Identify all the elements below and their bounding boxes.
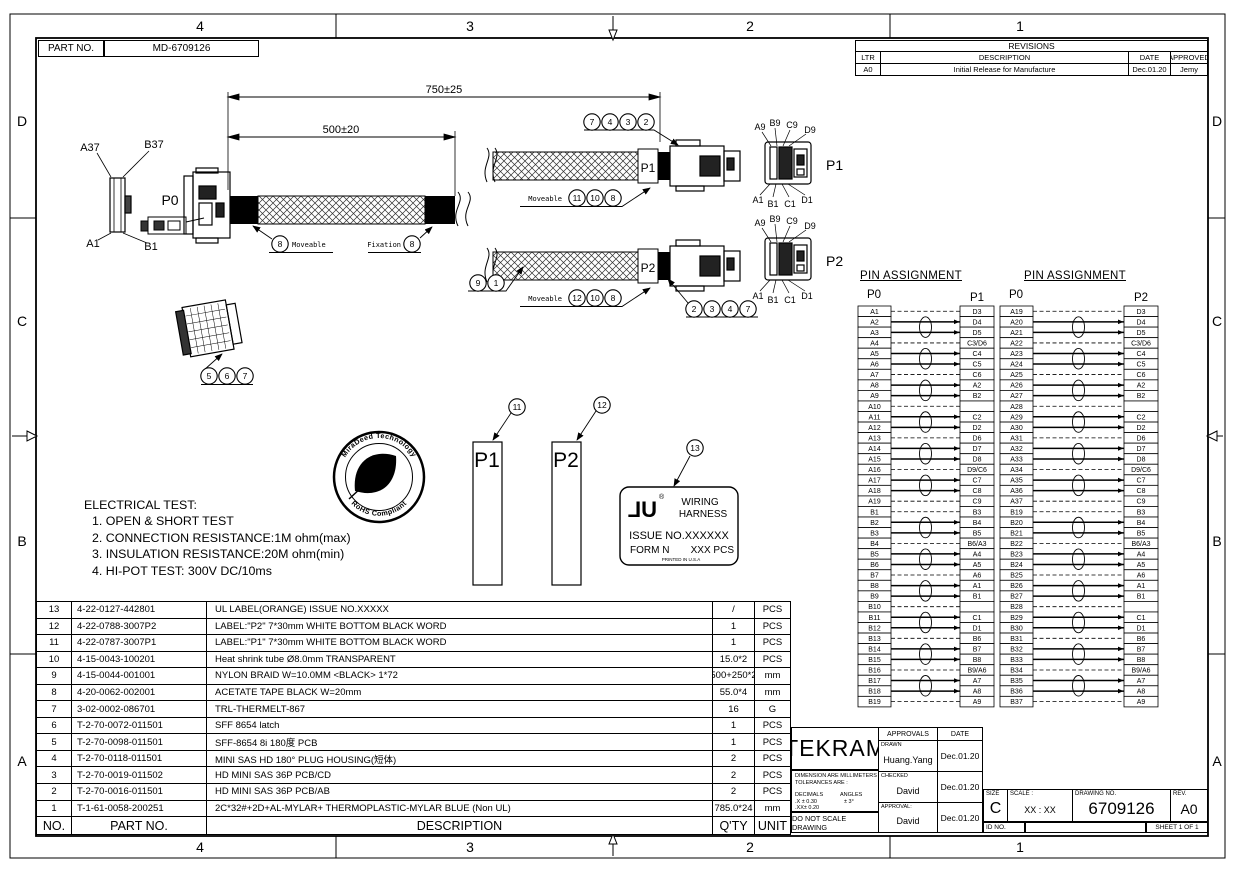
pin-cell-left: A27	[1010, 393, 1023, 400]
wire-arrow-icon	[954, 383, 960, 388]
drawing-text: D1	[801, 291, 813, 301]
pin-cell-right: B9/A6	[1131, 668, 1150, 675]
pin-cell-right: D6	[973, 435, 982, 442]
approval-role: APPROVAL:	[881, 804, 912, 810]
decimals-label: DECIMALS	[795, 792, 823, 798]
balloon-number: 2	[644, 117, 649, 127]
pin-cell-left: A9	[870, 393, 879, 400]
bom-row: 84-20-0062-002001ACETATE TAPE BLACK W=20…	[37, 685, 791, 702]
rev-cell: REV. A0	[1170, 789, 1208, 822]
pin-cell-left: B3	[870, 530, 879, 537]
rev-value: A0	[1180, 795, 1197, 817]
pin-cell-left: A21	[1010, 330, 1023, 337]
size-cell: SIZE C	[983, 789, 1008, 822]
drawing-text: P2	[553, 449, 579, 472]
bom-cell-part: T-2-70-0072-011501	[72, 718, 207, 735]
pin-cell-left: A13	[868, 435, 881, 442]
twisted-pair-icon	[920, 348, 932, 369]
bom-header-desc: DESCRIPTION	[207, 817, 713, 835]
pin-cell-box	[1124, 601, 1158, 612]
bom-cell-desc: LABEL:"P1" 7*30mm WHITE BOTTOM BLACK WOR…	[207, 635, 713, 652]
twisted-pair-icon	[920, 676, 932, 697]
revision-approved: Jemy	[1170, 63, 1208, 76]
pin-table-left-header: P0	[867, 289, 881, 301]
checked-role: CHECKED	[881, 773, 908, 779]
pin-cell-left: B22	[1010, 541, 1023, 548]
svg-text:RoHS Compliant: RoHS Compliant	[350, 499, 409, 518]
drawing-text: C1	[784, 295, 796, 305]
balloon-number: 4	[608, 117, 613, 127]
twisted-pair-icon	[920, 475, 932, 496]
pin-assignment-title-2: PIN ASSIGNMENT	[1009, 270, 1141, 282]
drawing-text: P1	[641, 161, 656, 175]
wire-arrow-icon	[954, 615, 960, 620]
rev-label: REV.	[1173, 791, 1186, 797]
bom-cell-qty: 1	[713, 619, 755, 636]
wire-arrow-icon	[1118, 594, 1124, 599]
balloon-number: 5	[207, 371, 212, 381]
bom-cell-unit: mm	[755, 801, 791, 818]
wire-arrow-icon	[1118, 393, 1124, 398]
pin-cell-left: B10	[868, 604, 881, 611]
balloon-number: 4	[728, 304, 733, 314]
pin-assignment-title-1: PIN ASSIGNMENT	[845, 270, 977, 282]
do-not-scale-note: DO NOT SCALE DRAWING	[791, 812, 879, 833]
bom-cell-desc: LABEL:"P2" 7*30mm WHITE BOTTOM BLACK WOR…	[207, 619, 713, 636]
pin-cell-left: A26	[1010, 383, 1023, 390]
drawing-text: Moveable	[528, 195, 562, 203]
bom-cell-unit: mm	[755, 668, 791, 685]
p1-end-view	[760, 128, 811, 197]
part-no-value: MD-6709126	[104, 40, 259, 57]
p2-end-view	[760, 224, 811, 293]
bom-cell-unit: PCS	[755, 619, 791, 636]
pin-cell-right: D4	[973, 319, 982, 326]
wire-arrow-icon	[954, 520, 960, 525]
pin-cell-left: A23	[1010, 351, 1023, 358]
pin-cell-right: A6	[973, 573, 982, 580]
bom-cell-unit: PCS	[755, 734, 791, 751]
wire-arrow-icon	[954, 562, 960, 567]
bom-cell-part: T-2-70-0016-011501	[72, 784, 207, 801]
pin-cell-right: C6	[973, 372, 982, 379]
angles-tol: ± 3°	[844, 799, 854, 805]
bom-cell-part: T-1-61-0058-200251	[72, 801, 207, 818]
pin-cell-left: A31	[1010, 435, 1023, 442]
bom-row: 94-15-0044-001001NYLON BRAID W=10.0MM <B…	[37, 668, 791, 685]
bom-row: 5T-2-70-0098-011501SFF-8654 8i 180度 PCB1…	[37, 734, 791, 751]
pin-cell-left: B37	[1010, 699, 1023, 706]
wire-arrow-icon	[954, 552, 960, 557]
pin-cell-right: D2	[973, 425, 982, 432]
balloon-number: 1	[494, 278, 499, 288]
p2-connector	[670, 240, 740, 291]
drawing-text: P1	[826, 157, 843, 173]
company-logo: TEKRAM	[791, 727, 879, 770]
balloon-number: 3	[626, 117, 631, 127]
bom-cell-desc: NYLON BRAID W=10.0MM <BLACK> 1*72	[207, 668, 713, 685]
bom-cell-no: 6	[37, 718, 72, 735]
wire-arrow-icon	[954, 689, 960, 694]
pin-cell-right: A1	[1137, 583, 1146, 590]
bom-table: 134-22-0127-442801UL LABEL(ORANGE) ISSUE…	[36, 601, 791, 835]
bom-cell-no: 2	[37, 784, 72, 801]
twisted-pair-icon	[920, 612, 932, 633]
pin-cell-left: B29	[1010, 615, 1023, 622]
pin-cell-left: A5	[870, 351, 879, 358]
pin-cell-right: B6	[1137, 636, 1146, 643]
twisted-pair-icon	[920, 549, 932, 570]
wire-arrow-icon	[1118, 552, 1124, 557]
pin-cell-right: C1	[973, 615, 982, 622]
twisted-pair-icon	[920, 317, 932, 338]
pin-cell-left: B33	[1010, 657, 1023, 664]
pin-cell-right: B7	[1137, 646, 1146, 653]
pin-cell-left: B36	[1010, 689, 1023, 696]
pin-cell-right: C1	[1137, 615, 1146, 622]
pin-cell-left: A19	[1010, 309, 1023, 316]
pin-cell-right: B4	[1137, 520, 1146, 527]
pin-cell-right: C4	[1137, 351, 1146, 358]
pin-cell-left: B34	[1010, 668, 1023, 675]
wire-arrow-icon	[954, 625, 960, 630]
wire-arrow-icon	[1118, 520, 1124, 525]
bom-cell-qty: 2	[713, 751, 755, 768]
pin-cell-right: D2	[1137, 425, 1146, 432]
pin-cell-right: B8	[973, 657, 982, 664]
bom-cell-unit: PCS	[755, 784, 791, 801]
wire-arrow-icon	[954, 488, 960, 493]
wire-arrow-icon	[1118, 625, 1124, 630]
bom-cell-qty: 785.0*24	[713, 801, 755, 818]
pin-cell-right: A7	[973, 678, 982, 685]
balloon-number: 13	[690, 443, 700, 453]
pin-cell-left: A8	[870, 383, 879, 390]
bom-row: 4T-2-70-0118-011501MINI SAS HD 180° PLUG…	[37, 751, 791, 768]
bom-cell-qty: /	[713, 602, 755, 619]
balloon-number: 8	[611, 293, 616, 303]
pin-cell-left: A18	[868, 488, 881, 495]
bom-row: 1T-1-61-0058-2002512C*32#+2D+AL-MYLAR+ T…	[37, 801, 791, 818]
leader-line	[584, 130, 678, 145]
wire-arrow-icon	[1118, 478, 1124, 483]
bom-header-row: NO.PART NO.DESCRIPTIONQ'TYUNIT	[37, 817, 791, 835]
pin-cell-left: A1	[870, 309, 879, 316]
pin-cell-left: B7	[870, 573, 879, 580]
drawing-text: ISSUE NO.XXXXXX	[629, 530, 729, 542]
bom-row: 114-22-0787-3007P1LABEL:"P1" 7*30mm WHIT…	[37, 635, 791, 652]
pin-cell-right: C3/D6	[1131, 340, 1151, 347]
drawing-text: A9	[754, 122, 765, 132]
bom-cell-no: 1	[37, 801, 72, 818]
pin-cell-left: A16	[868, 467, 881, 474]
wire-arrow-icon	[1118, 531, 1124, 536]
pin-cell-right: D3	[973, 309, 982, 316]
pin-cell-right: A6	[1137, 573, 1146, 580]
bom-cell-part: 4-15-0044-001001	[72, 668, 207, 685]
checked-cell: CHECKED David	[878, 771, 938, 803]
pin-cell-left: A34	[1010, 467, 1023, 474]
pin-cell-left: A20	[1010, 319, 1023, 326]
pin-cell-right: B2	[973, 393, 982, 400]
drawn-cell: DRAWN Huang.Yang	[878, 740, 938, 772]
pin-cell-left: B16	[868, 668, 881, 675]
wire-arrow-icon	[1118, 351, 1124, 356]
bom-row: 73-02-0002-086701TRL-THERMELT-86716G	[37, 701, 791, 718]
pin-cell-left: B19	[868, 699, 881, 706]
balloon-number: 2	[692, 304, 697, 314]
pin-cell-left: A33	[1010, 457, 1023, 464]
pin-cell-right: D7	[1137, 446, 1146, 453]
bom-cell-qty: 15.0*2	[713, 652, 755, 669]
latch-part	[141, 217, 204, 234]
pin-cell-right: C5	[973, 362, 982, 369]
pin-cell-right: C6	[1137, 372, 1146, 379]
pin-cell-box	[960, 401, 994, 412]
pin-cell-left: B21	[1010, 530, 1023, 537]
bom-cell-unit: PCS	[755, 635, 791, 652]
pin-cell-right: A7	[1137, 678, 1146, 685]
pin-cell-left: B9	[870, 594, 879, 601]
pin-cell-box	[1124, 401, 1158, 412]
approval-cell: APPROVAL: David	[878, 802, 938, 833]
bom-cell-qty: 55.0*4	[713, 685, 755, 702]
drawing-text: C9	[786, 120, 798, 130]
pin-cell-left: A24	[1010, 362, 1023, 369]
pin-cell-right: A9	[1137, 699, 1146, 706]
drawing-no-cell: DRAWING NO. 6709126	[1072, 789, 1171, 822]
tolerance-note-1: DIMENSION ARE MILLIMETERS	[795, 773, 877, 779]
bom-cell-desc: SFF 8654 latch	[207, 718, 713, 735]
pin-cell-left: B15	[868, 657, 881, 664]
pin-cell-right: A5	[1137, 562, 1146, 569]
bom-cell-desc: HD MINI SAS 36P PCB/CD	[207, 767, 713, 784]
bom-cell-unit: PCS	[755, 652, 791, 669]
bom-row: 134-22-0127-442801UL LABEL(ORANGE) ISSUE…	[37, 602, 791, 619]
bom-cell-part: T-2-70-0019-011502	[72, 767, 207, 784]
drawing-text: HARNESS	[679, 509, 728, 520]
pin-cell-right: B3	[1137, 509, 1146, 516]
pin-cell-right: D4	[1137, 319, 1146, 326]
bom-header-part: PART NO.	[72, 817, 207, 835]
bom-cell-no: 11	[37, 635, 72, 652]
balloon-number: 8	[410, 239, 415, 249]
pin-cell-left: A17	[868, 478, 881, 485]
drawing-text: WIRING	[681, 497, 718, 508]
drawing-text: A37	[80, 142, 100, 154]
pin-cell-left: B11	[869, 615, 881, 622]
drawing-text: ®	[659, 493, 665, 501]
bom-cell-part: 4-22-0788-3007P2	[72, 619, 207, 636]
checked-name: David	[896, 779, 919, 796]
pin-cell-right: B6/A3	[1131, 541, 1150, 548]
pin-cell-right: B1	[973, 594, 982, 601]
pin-cell-left: B13	[868, 636, 881, 643]
pin-cell-left: A12	[868, 425, 881, 432]
wire-arrow-icon	[1118, 562, 1124, 567]
electrical-test-line: 3. INSULATION RESISTANCE:20M ohm(min)	[84, 546, 351, 562]
twisted-pair-icon	[920, 517, 932, 538]
pin-cell-right: D7	[973, 446, 982, 453]
twisted-pair-icon	[920, 412, 932, 433]
drawing-text: P1	[474, 449, 500, 472]
drawing-text: FORM N	[630, 545, 669, 556]
drawing-no-label: DRAWING NO.	[1075, 791, 1116, 797]
cable-break-icon	[456, 192, 461, 226]
pin-cell-left: B32	[1010, 646, 1023, 653]
approval-name: David	[896, 809, 919, 826]
bom-cell-unit: PCS	[755, 602, 791, 619]
bom-cell-no: 9	[37, 668, 72, 685]
drawing-text: C9	[786, 216, 798, 226]
bom-row: 3T-2-70-0019-011502HD MINI SAS 36P PCB/C…	[37, 767, 791, 784]
drawing-text: D9	[804, 221, 816, 231]
pin-cell-right: A8	[973, 689, 982, 696]
pin-cell-left: A19	[868, 499, 881, 506]
pin-cell-right: D5	[1137, 330, 1146, 337]
wire-arrow-icon	[954, 330, 960, 335]
pin-cell-left: B30	[1010, 625, 1023, 632]
pin-cell-left: B12	[868, 625, 881, 632]
pin-cell-right: B5	[973, 530, 982, 537]
part-no-label: PART NO.	[38, 40, 104, 57]
bom-cell-no: 4	[37, 751, 72, 768]
pin-cell-left: B17	[868, 678, 881, 685]
drawing-text: P2	[826, 253, 843, 269]
pin-cell-left: A10	[868, 404, 881, 411]
pin-cell-right: B2	[1137, 393, 1146, 400]
pin-table-left-header: P0	[1009, 289, 1023, 301]
wire-arrow-icon	[954, 478, 960, 483]
bom-row: 104-15-0043-100201Heat shrink tube Ø8.0m…	[37, 652, 791, 669]
ul-logo-icon: UL	[628, 497, 657, 522]
bom-cell-no: 12	[37, 619, 72, 636]
bom-cell-part: 3-02-0002-086701	[72, 701, 207, 718]
bom-cell-unit: PCS	[755, 767, 791, 784]
bom-cell-qty: 1	[713, 718, 755, 735]
bom-cell-qty: 500+250*2	[713, 668, 755, 685]
balloon-number: 3	[710, 304, 715, 314]
balloon-number: 9	[476, 278, 481, 288]
balloon-number: 7	[243, 371, 248, 381]
balloon-number: 10	[590, 293, 600, 303]
twisted-pair-icon	[1073, 644, 1085, 665]
drawing-text: Moveable	[528, 295, 562, 303]
drawing-text: A1	[86, 238, 99, 250]
drawing-text: P0	[161, 192, 178, 208]
pin-cell-left: B19	[1010, 509, 1023, 516]
bom-cell-unit: G	[755, 701, 791, 718]
pin-cell-right: C4	[973, 351, 982, 358]
size-label: SIZE	[986, 791, 999, 797]
bom-cell-part: 4-22-0787-3007P1	[72, 635, 207, 652]
twisted-pair-icon	[920, 581, 932, 602]
twisted-pair-icon	[1073, 317, 1085, 338]
id-no-value	[1025, 822, 1146, 833]
pin-cell-left: A22	[1010, 340, 1023, 347]
bom-header-unit: UNIT	[755, 817, 791, 835]
bom-cell-desc: Heat shrink tube Ø8.0mm TRANSPARENT	[207, 652, 713, 669]
twisted-pair-icon	[1073, 475, 1085, 496]
wire-arrow-icon	[1118, 320, 1124, 325]
balloon-number: 8	[278, 239, 283, 249]
pin-cell-left: A3	[870, 330, 879, 337]
wire-arrow-icon	[954, 393, 960, 398]
bom-cell-desc: HD MINI SAS 36P PCB/AB	[207, 784, 713, 801]
drawn-date: Dec.01.20	[937, 740, 983, 772]
pin-cell-right: D8	[1137, 457, 1146, 464]
bom-cell-desc: 2C*32#+2D+AL-MYLAR+ THERMOPLASTIC-MYLAR …	[207, 801, 713, 818]
p1-connector	[670, 140, 740, 191]
tolerance-block: DIMENSION ARE MILLIMETERS TOLERANCES ARE…	[791, 770, 879, 812]
drawn-name: Huang.Yang	[883, 748, 932, 765]
wire-arrow-icon	[954, 320, 960, 325]
pin-cell-right: A2	[1137, 383, 1146, 390]
wire-arrow-icon	[1118, 457, 1124, 462]
pin-cell-right: C7	[973, 478, 982, 485]
wire-arrow-icon	[954, 647, 960, 652]
balloon-number: 10	[590, 193, 600, 203]
pin-cell-left: A15	[868, 457, 881, 464]
balloon-number: 8	[611, 193, 616, 203]
bom-cell-part: 4-15-0043-100201	[72, 652, 207, 669]
scale-value: XX : XX	[1024, 797, 1056, 815]
pin-cell-right: B9/A6	[967, 668, 986, 675]
pin-cell-right: B6	[973, 636, 982, 643]
pin-cell-right: C7	[1137, 478, 1146, 485]
pin-cell-left: B14	[868, 646, 881, 653]
pin-cell-right: A4	[973, 551, 982, 558]
pin-cell-right: B8	[1137, 657, 1146, 664]
twisted-pair-icon	[1073, 348, 1085, 369]
wire-arrow-icon	[954, 583, 960, 588]
main-cable	[230, 192, 470, 226]
wire-arrow-icon	[954, 594, 960, 599]
decimals-tol-2: .XX± 0.20	[795, 805, 819, 811]
sheet-number: SHEET 1 OF 1	[1146, 822, 1208, 833]
bom-cell-part: T-2-70-0118-011501	[72, 751, 207, 768]
balloon-number: 12	[597, 400, 607, 410]
electrical-test-line: 4. HI-POT TEST: 300V DC/10ms	[84, 563, 351, 579]
engineering-drawing-sheet: { "sheet": { "zones_cols": ["4", "3", "2…	[0, 0, 1235, 872]
wire-arrow-icon	[1118, 330, 1124, 335]
twisted-pair-icon	[1073, 443, 1085, 464]
pin-cell-left: A4	[870, 340, 879, 347]
pin-cell-right: B6/A3	[967, 541, 986, 548]
size-value: C	[990, 794, 1002, 818]
pin-cell-right: C2	[1137, 414, 1146, 421]
bom-cell-desc: SFF-8654 8i 180度 PCB	[207, 734, 713, 751]
twisted-pair-icon	[1073, 380, 1085, 401]
pin-cell-right: D1	[1137, 625, 1146, 632]
scale-cell: SCALE : XX : XX	[1007, 789, 1073, 822]
pin-cell-right: D9/C6	[967, 467, 987, 474]
pin-cell-left: B24	[1010, 562, 1023, 569]
pin-cell-left: A36	[1010, 488, 1023, 495]
bom-cell-no: 3	[37, 767, 72, 784]
drawing-text: A1	[752, 291, 763, 301]
bom-cell-unit: mm	[755, 685, 791, 702]
pin-cell-right: C8	[1137, 488, 1146, 495]
electrical-test-line: 2. CONNECTION RESISTANCE:1M ohm(max)	[84, 530, 351, 546]
wire-arrow-icon	[1118, 583, 1124, 588]
pin-cell-left: B31	[1010, 636, 1023, 643]
wire-arrow-icon	[1118, 678, 1124, 683]
bom-cell-no: 5	[37, 734, 72, 751]
twisted-pair-icon	[1073, 412, 1085, 433]
pin-cell-right: C8	[973, 488, 982, 495]
bom-cell-desc: MINI SAS HD 180° PLUG HOUSING(短体)	[207, 751, 713, 768]
